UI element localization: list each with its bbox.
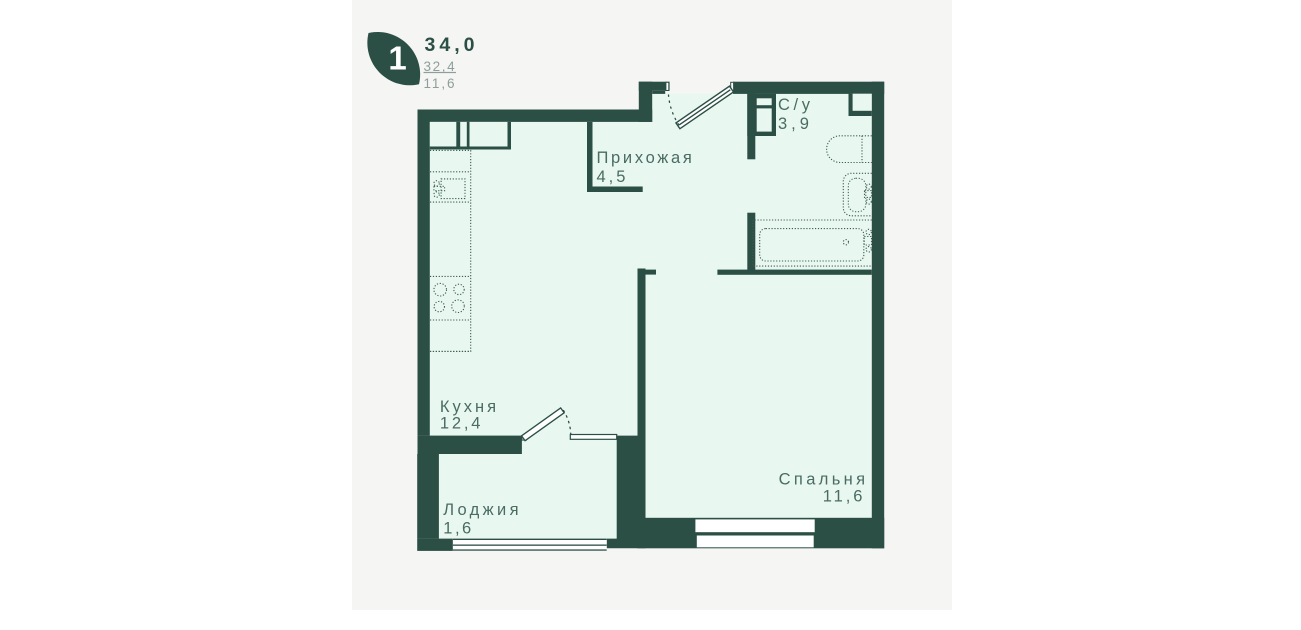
svg-text:11,6: 11,6 (424, 76, 457, 91)
svg-text:32,4: 32,4 (424, 59, 457, 74)
svg-text:Прихожая: Прихожая (597, 149, 695, 167)
svg-text:Кухня: Кухня (440, 398, 499, 416)
svg-text:Лоджия: Лоджия (443, 501, 522, 519)
svg-text:С/у: С/у (778, 96, 814, 114)
svg-text:1: 1 (388, 40, 406, 77)
svg-text:34,0: 34,0 (425, 34, 479, 56)
svg-text:3,9: 3,9 (778, 115, 813, 133)
svg-text:Спальня: Спальня (779, 471, 869, 489)
svg-text:11,6: 11,6 (823, 488, 866, 506)
svg-text:12,4: 12,4 (440, 415, 483, 433)
svg-text:4,5: 4,5 (597, 168, 629, 186)
svg-text:1,6: 1,6 (443, 520, 473, 538)
